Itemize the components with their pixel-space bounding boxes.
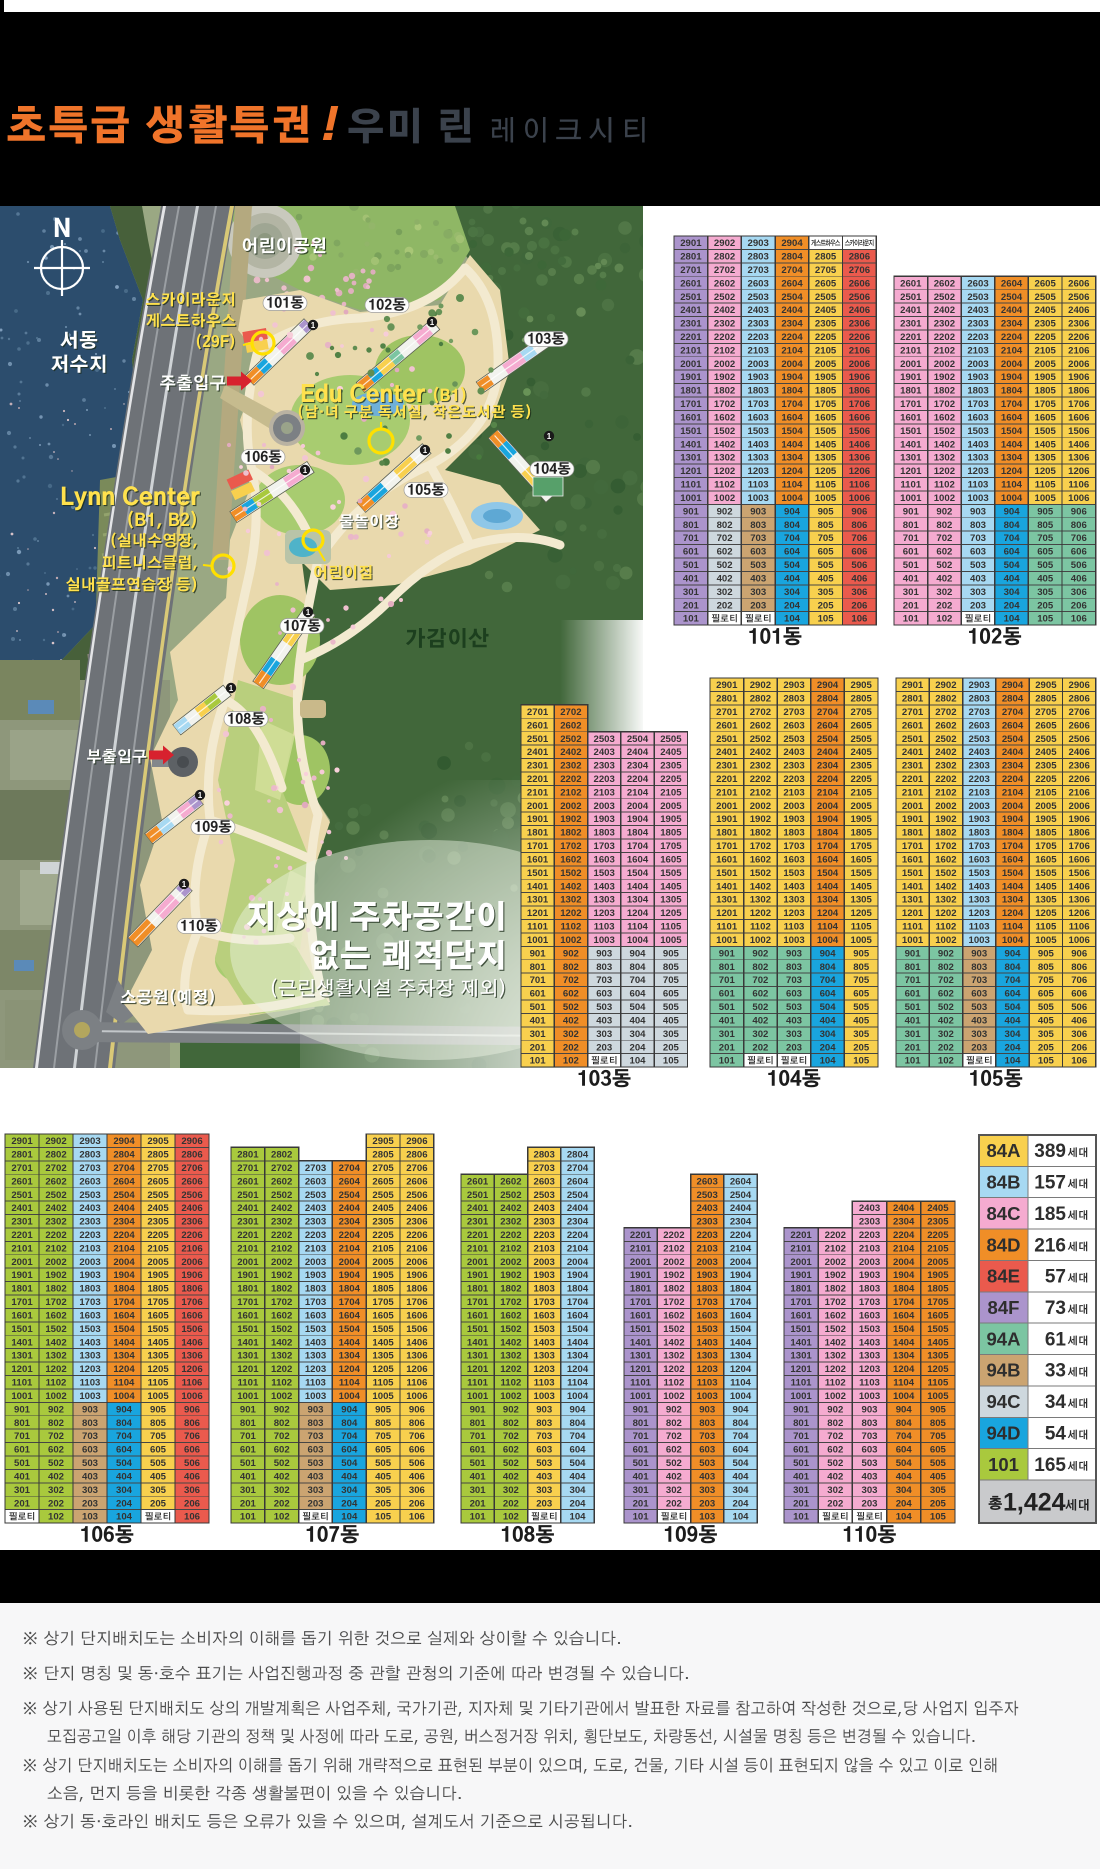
svg-text:1602: 1602 xyxy=(750,855,771,866)
svg-text:2202: 2202 xyxy=(271,1230,292,1241)
svg-text:406: 406 xyxy=(409,1472,425,1483)
svg-text:2803: 2803 xyxy=(783,694,804,705)
svg-text:1001: 1001 xyxy=(630,1391,652,1402)
svg-text:2704: 2704 xyxy=(781,265,803,276)
svg-text:2104: 2104 xyxy=(1002,787,1024,798)
svg-text:1506: 1506 xyxy=(181,1324,202,1335)
svg-text:1501: 1501 xyxy=(680,426,702,437)
svg-text:2501: 2501 xyxy=(716,734,738,745)
svg-text:2702: 2702 xyxy=(750,707,771,718)
svg-text:2206: 2206 xyxy=(406,1230,427,1241)
svg-text:1301: 1301 xyxy=(630,1351,652,1362)
svg-text:1102: 1102 xyxy=(714,480,735,491)
svg-text:606: 606 xyxy=(1071,989,1087,1000)
svg-text:2801: 2801 xyxy=(902,694,924,705)
svg-text:1804: 1804 xyxy=(817,828,839,839)
svg-text:2402: 2402 xyxy=(750,747,771,758)
svg-text:84A: 84A xyxy=(987,1140,1021,1161)
svg-text:303: 303 xyxy=(536,1485,552,1496)
svg-text:1901: 1901 xyxy=(11,1270,33,1281)
svg-text:1905: 1905 xyxy=(147,1270,169,1281)
svg-text:1306: 1306 xyxy=(181,1351,202,1362)
svg-text:1606: 1606 xyxy=(849,413,870,424)
svg-text:1103: 1103 xyxy=(748,480,769,491)
svg-text:1901: 1901 xyxy=(237,1270,259,1281)
svg-text:1801: 1801 xyxy=(237,1284,259,1295)
svg-text:2605: 2605 xyxy=(1035,278,1057,289)
svg-text:803: 803 xyxy=(596,962,612,973)
svg-text:502: 502 xyxy=(938,1002,954,1013)
svg-text:703: 703 xyxy=(82,1431,98,1442)
svg-text:1906: 1906 xyxy=(1069,814,1090,825)
svg-text:501: 501 xyxy=(14,1458,31,1469)
svg-text:905: 905 xyxy=(1037,506,1054,517)
svg-text:701: 701 xyxy=(905,975,922,986)
svg-text:305: 305 xyxy=(150,1485,167,1496)
svg-text:1603: 1603 xyxy=(534,1311,555,1322)
svg-text:304: 304 xyxy=(341,1485,358,1496)
svg-text:1901: 1901 xyxy=(680,372,702,383)
svg-text:389: 389 xyxy=(1034,1141,1066,1162)
svg-text:204: 204 xyxy=(1004,600,1021,611)
svg-text:1305: 1305 xyxy=(1035,453,1057,464)
svg-text:901: 901 xyxy=(633,1404,650,1415)
svg-text:2404: 2404 xyxy=(781,305,803,316)
svg-text:2604: 2604 xyxy=(339,1176,361,1187)
svg-text:604: 604 xyxy=(784,547,801,558)
svg-text:2805: 2805 xyxy=(372,1150,394,1161)
svg-text:2505: 2505 xyxy=(851,734,873,745)
svg-text:602: 602 xyxy=(48,1445,64,1456)
svg-text:1205: 1205 xyxy=(660,908,682,919)
svg-text:205: 205 xyxy=(853,1042,870,1053)
svg-text:402: 402 xyxy=(48,1472,64,1483)
svg-text:1103: 1103 xyxy=(968,480,989,491)
svg-text:2005: 2005 xyxy=(851,801,873,812)
svg-text:2304: 2304 xyxy=(817,761,839,772)
svg-text:2603: 2603 xyxy=(967,278,988,289)
svg-text:2204: 2204 xyxy=(113,1230,135,1241)
svg-text:2503: 2503 xyxy=(305,1190,326,1201)
svg-text:1705: 1705 xyxy=(927,1297,949,1308)
svg-text:2102: 2102 xyxy=(271,1243,292,1254)
svg-text:1701: 1701 xyxy=(237,1297,259,1308)
svg-text:1604: 1604 xyxy=(781,413,803,424)
svg-text:906: 906 xyxy=(1071,506,1087,517)
svg-text:1803: 1803 xyxy=(79,1284,100,1295)
svg-text:905: 905 xyxy=(663,948,680,959)
svg-text:503: 503 xyxy=(699,1458,715,1469)
svg-text:304: 304 xyxy=(896,1485,913,1496)
svg-text:505: 505 xyxy=(375,1458,392,1469)
svg-text:304: 304 xyxy=(1004,1029,1021,1040)
svg-text:603: 603 xyxy=(82,1445,98,1456)
svg-text:1804: 1804 xyxy=(567,1284,589,1295)
svg-text:2501: 2501 xyxy=(237,1190,259,1201)
svg-text:501: 501 xyxy=(633,1458,650,1469)
svg-text:202: 202 xyxy=(666,1498,682,1509)
svg-text:403: 403 xyxy=(536,1472,552,1483)
svg-text:2201: 2201 xyxy=(630,1230,652,1241)
svg-text:1504: 1504 xyxy=(1002,868,1024,879)
svg-text:1205: 1205 xyxy=(147,1364,169,1375)
svg-text:2902: 2902 xyxy=(750,680,771,691)
svg-text:1705: 1705 xyxy=(815,399,837,410)
svg-text:2504: 2504 xyxy=(339,1190,361,1201)
svg-text:705: 705 xyxy=(1038,975,1055,986)
svg-text:603: 603 xyxy=(971,989,987,1000)
svg-text:405: 405 xyxy=(818,574,835,585)
svg-text:1403: 1403 xyxy=(859,1337,880,1348)
svg-text:802: 802 xyxy=(503,1418,519,1429)
svg-text:1702: 1702 xyxy=(663,1297,684,1308)
svg-text:501: 501 xyxy=(240,1458,257,1469)
svg-text:1102: 1102 xyxy=(663,1378,684,1389)
svg-text:2202: 2202 xyxy=(500,1230,521,1241)
svg-text:1405: 1405 xyxy=(851,881,873,892)
svg-text:402: 402 xyxy=(827,1472,843,1483)
svg-text:1301: 1301 xyxy=(237,1351,259,1362)
svg-text:2402: 2402 xyxy=(45,1203,66,1214)
svg-text:1901: 1901 xyxy=(467,1270,489,1281)
svg-text:1203: 1203 xyxy=(967,466,988,477)
svg-text:1103: 1103 xyxy=(969,922,990,933)
svg-text:702: 702 xyxy=(936,533,952,544)
svg-text:2904: 2904 xyxy=(817,680,839,691)
svg-text:1: 1 xyxy=(423,446,428,455)
svg-text:301: 301 xyxy=(530,1029,547,1040)
svg-text:2104: 2104 xyxy=(893,1243,915,1254)
svg-text:302: 302 xyxy=(666,1485,682,1496)
svg-text:1001: 1001 xyxy=(902,935,924,946)
svg-text:1601: 1601 xyxy=(630,1311,652,1322)
svg-text:1604: 1604 xyxy=(817,855,839,866)
svg-text:2002: 2002 xyxy=(500,1257,521,1268)
svg-text:806: 806 xyxy=(851,520,867,531)
svg-text:2604: 2604 xyxy=(113,1176,135,1187)
svg-text:2101: 2101 xyxy=(680,345,702,356)
svg-text:2504: 2504 xyxy=(567,1190,589,1201)
svg-text:705: 705 xyxy=(663,975,680,986)
svg-text:1803: 1803 xyxy=(594,828,615,839)
svg-text:1403: 1403 xyxy=(79,1337,100,1348)
svg-text:405: 405 xyxy=(1038,1016,1055,1027)
svg-text:203: 203 xyxy=(536,1498,552,1509)
svg-text:2603: 2603 xyxy=(969,720,990,731)
svg-text:2305: 2305 xyxy=(147,1217,169,1228)
svg-text:2406: 2406 xyxy=(1068,305,1089,316)
svg-text:601: 601 xyxy=(633,1445,650,1456)
svg-text:1303: 1303 xyxy=(697,1351,718,1362)
svg-text:2104: 2104 xyxy=(817,787,839,798)
svg-text:2506: 2506 xyxy=(1069,734,1090,745)
svg-text:505: 505 xyxy=(1038,1002,1055,1013)
svg-text:2501: 2501 xyxy=(11,1190,33,1201)
svg-text:901: 901 xyxy=(903,506,920,517)
svg-text:2003: 2003 xyxy=(748,359,769,370)
svg-text:103: 103 xyxy=(699,1512,715,1523)
svg-text:1304: 1304 xyxy=(730,1351,752,1362)
svg-text:904: 904 xyxy=(784,506,801,517)
svg-text:2505: 2505 xyxy=(1035,734,1057,745)
svg-text:2004: 2004 xyxy=(781,359,803,370)
svg-text:401: 401 xyxy=(530,1016,547,1027)
svg-text:901: 901 xyxy=(470,1404,487,1415)
svg-text:804: 804 xyxy=(1004,520,1021,531)
svg-text:1806: 1806 xyxy=(181,1284,202,1295)
svg-text:1101: 1101 xyxy=(791,1378,812,1389)
svg-text:2203: 2203 xyxy=(748,332,769,343)
svg-text:1: 1 xyxy=(303,466,308,475)
svg-text:2105: 2105 xyxy=(927,1243,949,1254)
svg-text:702: 702 xyxy=(48,1431,64,1442)
svg-text:1403: 1403 xyxy=(748,439,769,450)
svg-text:106: 106 xyxy=(1071,1056,1087,1067)
svg-text:303: 303 xyxy=(971,1029,987,1040)
svg-text:501: 501 xyxy=(903,560,920,571)
svg-text:804: 804 xyxy=(1004,962,1021,973)
svg-text:1601: 1601 xyxy=(467,1311,489,1322)
svg-text:1704: 1704 xyxy=(781,399,803,410)
svg-text:2102: 2102 xyxy=(825,1243,846,1254)
svg-text:402: 402 xyxy=(752,1016,768,1027)
svg-text:504: 504 xyxy=(784,560,801,571)
svg-text:1002: 1002 xyxy=(500,1391,521,1402)
svg-text:1802: 1802 xyxy=(825,1284,846,1295)
svg-text:1004: 1004 xyxy=(113,1391,135,1402)
svg-text:61: 61 xyxy=(1045,1329,1067,1350)
svg-text:2801: 2801 xyxy=(237,1150,259,1161)
svg-text:1105: 1105 xyxy=(815,480,836,491)
svg-text:204: 204 xyxy=(341,1498,358,1509)
svg-text:2304: 2304 xyxy=(1001,319,1023,330)
svg-text:2605: 2605 xyxy=(147,1176,169,1187)
svg-text:1201: 1201 xyxy=(237,1364,259,1375)
svg-text:2703: 2703 xyxy=(534,1163,555,1174)
svg-text:2802: 2802 xyxy=(45,1150,66,1161)
svg-text:2504: 2504 xyxy=(817,734,839,745)
svg-text:305: 305 xyxy=(375,1485,392,1496)
svg-text:1304: 1304 xyxy=(567,1351,589,1362)
svg-text:1705: 1705 xyxy=(147,1297,169,1308)
svg-text:1104: 1104 xyxy=(339,1378,360,1389)
svg-text:1403: 1403 xyxy=(697,1337,718,1348)
svg-text:302: 302 xyxy=(503,1485,519,1496)
svg-text:1203: 1203 xyxy=(748,466,769,477)
svg-text:1004: 1004 xyxy=(1002,935,1024,946)
svg-text:1701: 1701 xyxy=(680,399,702,410)
svg-text:1704: 1704 xyxy=(627,841,649,852)
svg-text:403: 403 xyxy=(750,574,766,585)
svg-text:1204: 1204 xyxy=(730,1364,752,1375)
svg-text:1705: 1705 xyxy=(1035,841,1057,852)
svg-text:1803: 1803 xyxy=(967,386,988,397)
svg-text:2702: 2702 xyxy=(935,707,956,718)
svg-text:2104: 2104 xyxy=(627,787,649,798)
svg-text:601: 601 xyxy=(470,1445,487,1456)
svg-text:2605: 2605 xyxy=(1035,720,1057,731)
svg-text:904: 904 xyxy=(896,1404,913,1415)
svg-text:1702: 1702 xyxy=(500,1297,521,1308)
svg-text:2406: 2406 xyxy=(406,1203,427,1214)
svg-text:1104: 1104 xyxy=(1001,480,1022,491)
svg-text:1901: 1901 xyxy=(902,814,924,825)
svg-text:2003: 2003 xyxy=(534,1257,555,1268)
svg-text:1201: 1201 xyxy=(467,1364,489,1375)
svg-text:206: 206 xyxy=(1071,1042,1087,1053)
svg-text:1705: 1705 xyxy=(1035,399,1057,410)
svg-text:102: 102 xyxy=(503,1512,519,1523)
svg-text:903: 903 xyxy=(786,948,802,959)
svg-text:2601: 2601 xyxy=(237,1176,259,1187)
svg-text:302: 302 xyxy=(717,587,733,598)
svg-text:1303: 1303 xyxy=(859,1351,880,1362)
svg-text:33: 33 xyxy=(1045,1361,1066,1382)
svg-text:1703: 1703 xyxy=(748,399,769,410)
svg-text:1201: 1201 xyxy=(527,908,549,919)
svg-text:101: 101 xyxy=(633,1512,650,1523)
svg-text:2806: 2806 xyxy=(849,252,870,263)
svg-text:2704: 2704 xyxy=(567,1163,589,1174)
svg-text:1902: 1902 xyxy=(560,814,581,825)
svg-text:1803: 1803 xyxy=(305,1284,326,1295)
svg-text:1903: 1903 xyxy=(969,814,990,825)
svg-text:2202: 2202 xyxy=(934,332,955,343)
svg-text:2002: 2002 xyxy=(271,1257,292,1268)
svg-text:1601: 1601 xyxy=(680,413,702,424)
svg-text:1703: 1703 xyxy=(79,1297,100,1308)
svg-text:1001: 1001 xyxy=(900,493,922,504)
svg-text:903: 903 xyxy=(307,1404,323,1415)
svg-text:503: 503 xyxy=(971,1002,987,1013)
svg-text:2305: 2305 xyxy=(660,761,682,772)
svg-text:2506: 2506 xyxy=(849,292,870,303)
svg-text:94D: 94D xyxy=(987,1423,1021,1444)
svg-text:34: 34 xyxy=(1045,1392,1067,1413)
svg-text:805: 805 xyxy=(663,962,680,973)
svg-text:2103: 2103 xyxy=(748,345,769,356)
svg-text:1602: 1602 xyxy=(714,413,735,424)
svg-text:1904: 1904 xyxy=(567,1270,589,1281)
svg-text:2101: 2101 xyxy=(11,1243,33,1254)
svg-text:1502: 1502 xyxy=(500,1324,521,1335)
svg-text:204: 204 xyxy=(116,1498,133,1509)
svg-text:206: 206 xyxy=(851,600,867,611)
svg-text:601: 601 xyxy=(905,989,922,1000)
svg-text:302: 302 xyxy=(752,1029,768,1040)
svg-text:1906: 1906 xyxy=(849,372,870,383)
svg-text:205: 205 xyxy=(1038,1042,1055,1053)
svg-text:301: 301 xyxy=(240,1485,257,1496)
svg-text:102: 102 xyxy=(938,1056,954,1067)
svg-text:1104: 1104 xyxy=(817,922,838,933)
svg-text:1504: 1504 xyxy=(730,1324,752,1335)
svg-text:402: 402 xyxy=(563,1016,579,1027)
svg-text:1706: 1706 xyxy=(1069,841,1090,852)
svg-text:906: 906 xyxy=(1071,948,1087,959)
svg-text:1602: 1602 xyxy=(934,413,955,424)
svg-text:706: 706 xyxy=(1071,533,1087,544)
svg-text:2406: 2406 xyxy=(1069,747,1090,758)
svg-text:1804: 1804 xyxy=(893,1284,915,1295)
svg-text:2302: 2302 xyxy=(500,1217,521,1228)
svg-text:102: 102 xyxy=(48,1512,64,1523)
svg-text:2404: 2404 xyxy=(893,1203,915,1214)
svg-text:1406: 1406 xyxy=(181,1337,202,1348)
svg-text:2603: 2603 xyxy=(783,720,804,731)
svg-text:1504: 1504 xyxy=(1001,426,1023,437)
svg-text:1505: 1505 xyxy=(1035,868,1057,879)
svg-text:404: 404 xyxy=(1004,574,1021,585)
svg-text:1504: 1504 xyxy=(567,1324,589,1335)
svg-text:2204: 2204 xyxy=(893,1230,915,1241)
svg-text:106: 106 xyxy=(851,614,867,625)
svg-text:306: 306 xyxy=(1071,587,1087,598)
svg-text:2104: 2104 xyxy=(567,1243,589,1254)
svg-text:301: 301 xyxy=(793,1485,810,1496)
svg-text:702: 702 xyxy=(563,975,579,986)
svg-text:604: 604 xyxy=(341,1445,358,1456)
svg-text:1301: 1301 xyxy=(790,1351,812,1362)
svg-text:703: 703 xyxy=(596,975,612,986)
svg-text:703: 703 xyxy=(699,1431,715,1442)
svg-text:703: 703 xyxy=(861,1431,877,1442)
svg-text:94A: 94A xyxy=(987,1328,1021,1349)
svg-text:2405: 2405 xyxy=(660,747,682,758)
svg-text:1105: 1105 xyxy=(660,922,681,933)
svg-text:2001: 2001 xyxy=(716,801,738,812)
svg-text:704: 704 xyxy=(732,1431,749,1442)
svg-text:1201: 1201 xyxy=(790,1364,812,1375)
svg-text:1301: 1301 xyxy=(11,1351,33,1362)
svg-text:1902: 1902 xyxy=(663,1270,684,1281)
svg-text:505: 505 xyxy=(930,1458,947,1469)
svg-text:2606: 2606 xyxy=(1069,720,1090,731)
svg-text:2503: 2503 xyxy=(79,1190,100,1201)
svg-text:202: 202 xyxy=(717,600,733,611)
svg-text:1501: 1501 xyxy=(527,868,549,879)
svg-text:405: 405 xyxy=(150,1472,167,1483)
svg-text:1006: 1006 xyxy=(1069,935,1090,946)
svg-text:803: 803 xyxy=(970,520,986,531)
svg-text:502: 502 xyxy=(752,1002,768,1013)
svg-text:1001: 1001 xyxy=(11,1391,33,1402)
svg-text:901: 901 xyxy=(14,1404,31,1415)
svg-text:1701: 1701 xyxy=(467,1297,489,1308)
svg-text:305: 305 xyxy=(930,1485,947,1496)
svg-text:1505: 1505 xyxy=(147,1324,169,1335)
svg-text:2304: 2304 xyxy=(113,1217,135,1228)
svg-text:806: 806 xyxy=(409,1418,425,1429)
svg-text:2101: 2101 xyxy=(630,1243,652,1254)
svg-text:802: 802 xyxy=(666,1418,682,1429)
svg-text:905: 905 xyxy=(375,1404,392,1415)
svg-text:2602: 2602 xyxy=(500,1176,521,1187)
svg-text:306: 306 xyxy=(409,1485,425,1496)
svg-text:1104: 1104 xyxy=(893,1378,914,1389)
svg-text:1405: 1405 xyxy=(147,1337,169,1348)
svg-text:1604: 1604 xyxy=(730,1311,752,1322)
svg-text:603: 603 xyxy=(536,1445,552,1456)
svg-text:1004: 1004 xyxy=(627,935,649,946)
svg-text:601: 601 xyxy=(903,547,920,558)
svg-text:2703: 2703 xyxy=(305,1163,326,1174)
svg-text:1502: 1502 xyxy=(714,426,735,437)
svg-text:402: 402 xyxy=(938,1016,954,1027)
svg-text:2001: 2001 xyxy=(237,1257,259,1268)
svg-text:401: 401 xyxy=(633,1472,650,1483)
svg-text:2503: 2503 xyxy=(748,292,769,303)
